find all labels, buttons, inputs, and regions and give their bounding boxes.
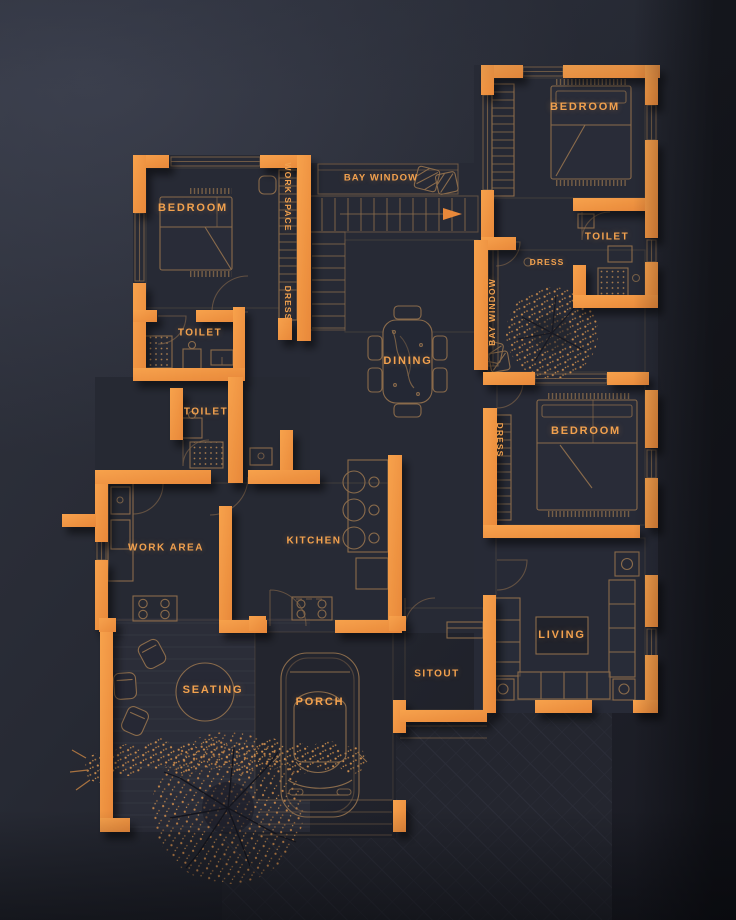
room-label-dress-nw: DRESS	[283, 286, 293, 321]
bed-ne	[551, 82, 631, 183]
room-label-bedroom-e: BEDROOM	[551, 425, 621, 437]
room-label-sitout: SITOUT	[414, 669, 459, 680]
room-label-work-area: WORK AREA	[128, 543, 204, 554]
room-label-bedroom-ne: BEDROOM	[550, 101, 620, 113]
room-label-dress-ne: DRESS	[530, 257, 565, 267]
floor-plan-drawing	[0, 0, 736, 920]
patio-chair	[113, 672, 137, 699]
room-label-kitchen: KITCHEN	[287, 536, 342, 547]
room-label-bay-window-top: BAY WINDOW	[344, 173, 418, 184]
room-label-dress-e: DRESS	[495, 423, 505, 458]
room-label-toilet-ne: TOILET	[585, 232, 629, 243]
room-label-toilet-a: TOILET	[178, 328, 222, 339]
room-label-porch: PORCH	[296, 696, 345, 708]
room-label-living: LIVING	[538, 629, 585, 641]
room-label-toilet-b: TOILET	[184, 407, 228, 418]
room-label-bay-window-right: BAY WINDOW	[487, 278, 497, 346]
room-label-work-space: WORK SPACE	[283, 163, 293, 232]
room-label-seating: SEATING	[183, 684, 244, 696]
wardrobe-ne	[492, 84, 514, 196]
room-label-bedroom-nw: BEDROOM	[158, 202, 228, 214]
bed-e	[537, 396, 637, 514]
room-label-dining: DINING	[383, 355, 432, 367]
floor-plan-canvas: BEDROOM WORK SPACE DRESS BAY WINDOW BEDR…	[0, 0, 736, 920]
